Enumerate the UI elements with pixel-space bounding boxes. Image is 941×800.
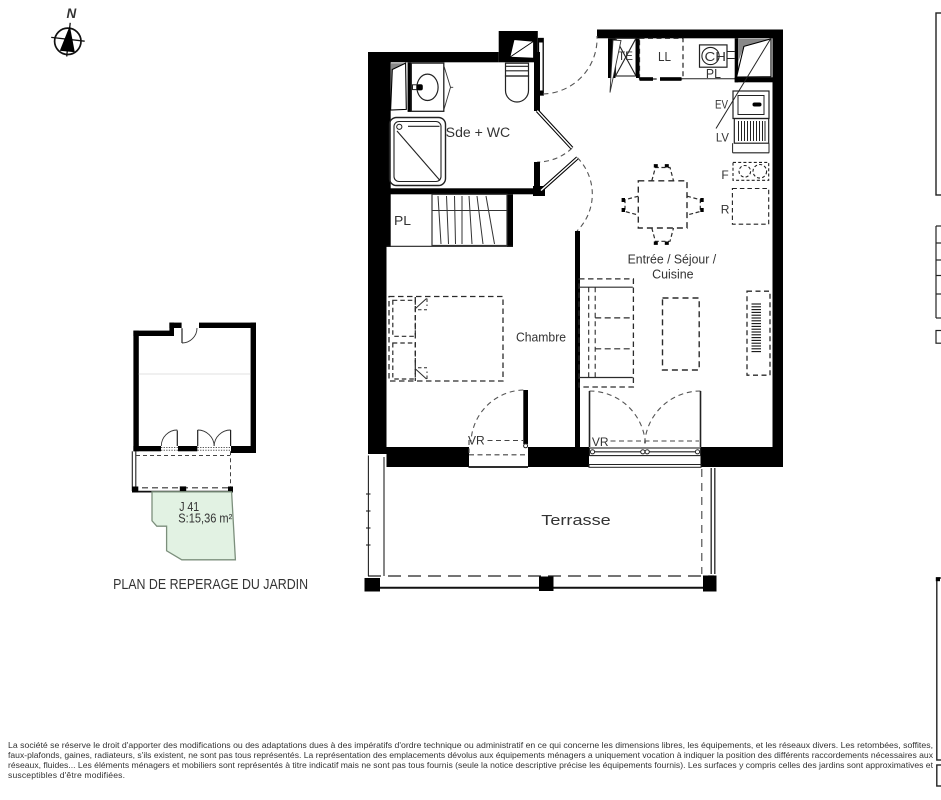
svg-text:S:15,36 m²: S:15,36 m² <box>178 511 232 525</box>
svg-text:réseaux, fluides... Les élémen: réseaux, fluides... Les éléments ménager… <box>8 760 934 770</box>
svg-text:TE: TE <box>618 49 633 63</box>
svg-text:Entrée / Séjour /: Entrée / Séjour / <box>628 252 717 267</box>
svg-text:susceptibles d'être modifiées.: susceptibles d'être modifiées. <box>8 770 125 780</box>
svg-text:VR: VR <box>468 434 485 448</box>
svg-text:PLAN DE REPERAGE DU JARDIN: PLAN DE REPERAGE DU JARDIN <box>113 577 308 593</box>
svg-text:Chambre: Chambre <box>516 330 566 345</box>
svg-text:LL: LL <box>658 50 671 64</box>
svg-text:PL: PL <box>394 213 411 228</box>
svg-text:F: F <box>721 168 728 182</box>
svg-text:La société se réserve le droit: La société se réserve le droit d'apporte… <box>8 740 933 750</box>
svg-text:CH: CH <box>705 50 727 64</box>
svg-text:PL: PL <box>706 67 721 81</box>
svg-text:VR: VR <box>592 435 609 449</box>
svg-text:R: R <box>721 203 730 217</box>
svg-text:Terrasse: Terrasse <box>541 512 610 529</box>
svg-text:faux-plafonds, gaines, radiate: faux-plafonds, gaines, radiateurs, s'ils… <box>8 750 934 760</box>
svg-text:EV: EV <box>715 98 728 112</box>
svg-text:Cuisine: Cuisine <box>652 267 694 282</box>
svg-text:LV: LV <box>716 131 729 145</box>
svg-text:Sde + WC: Sde + WC <box>446 125 511 140</box>
svg-text:N: N <box>67 6 77 21</box>
